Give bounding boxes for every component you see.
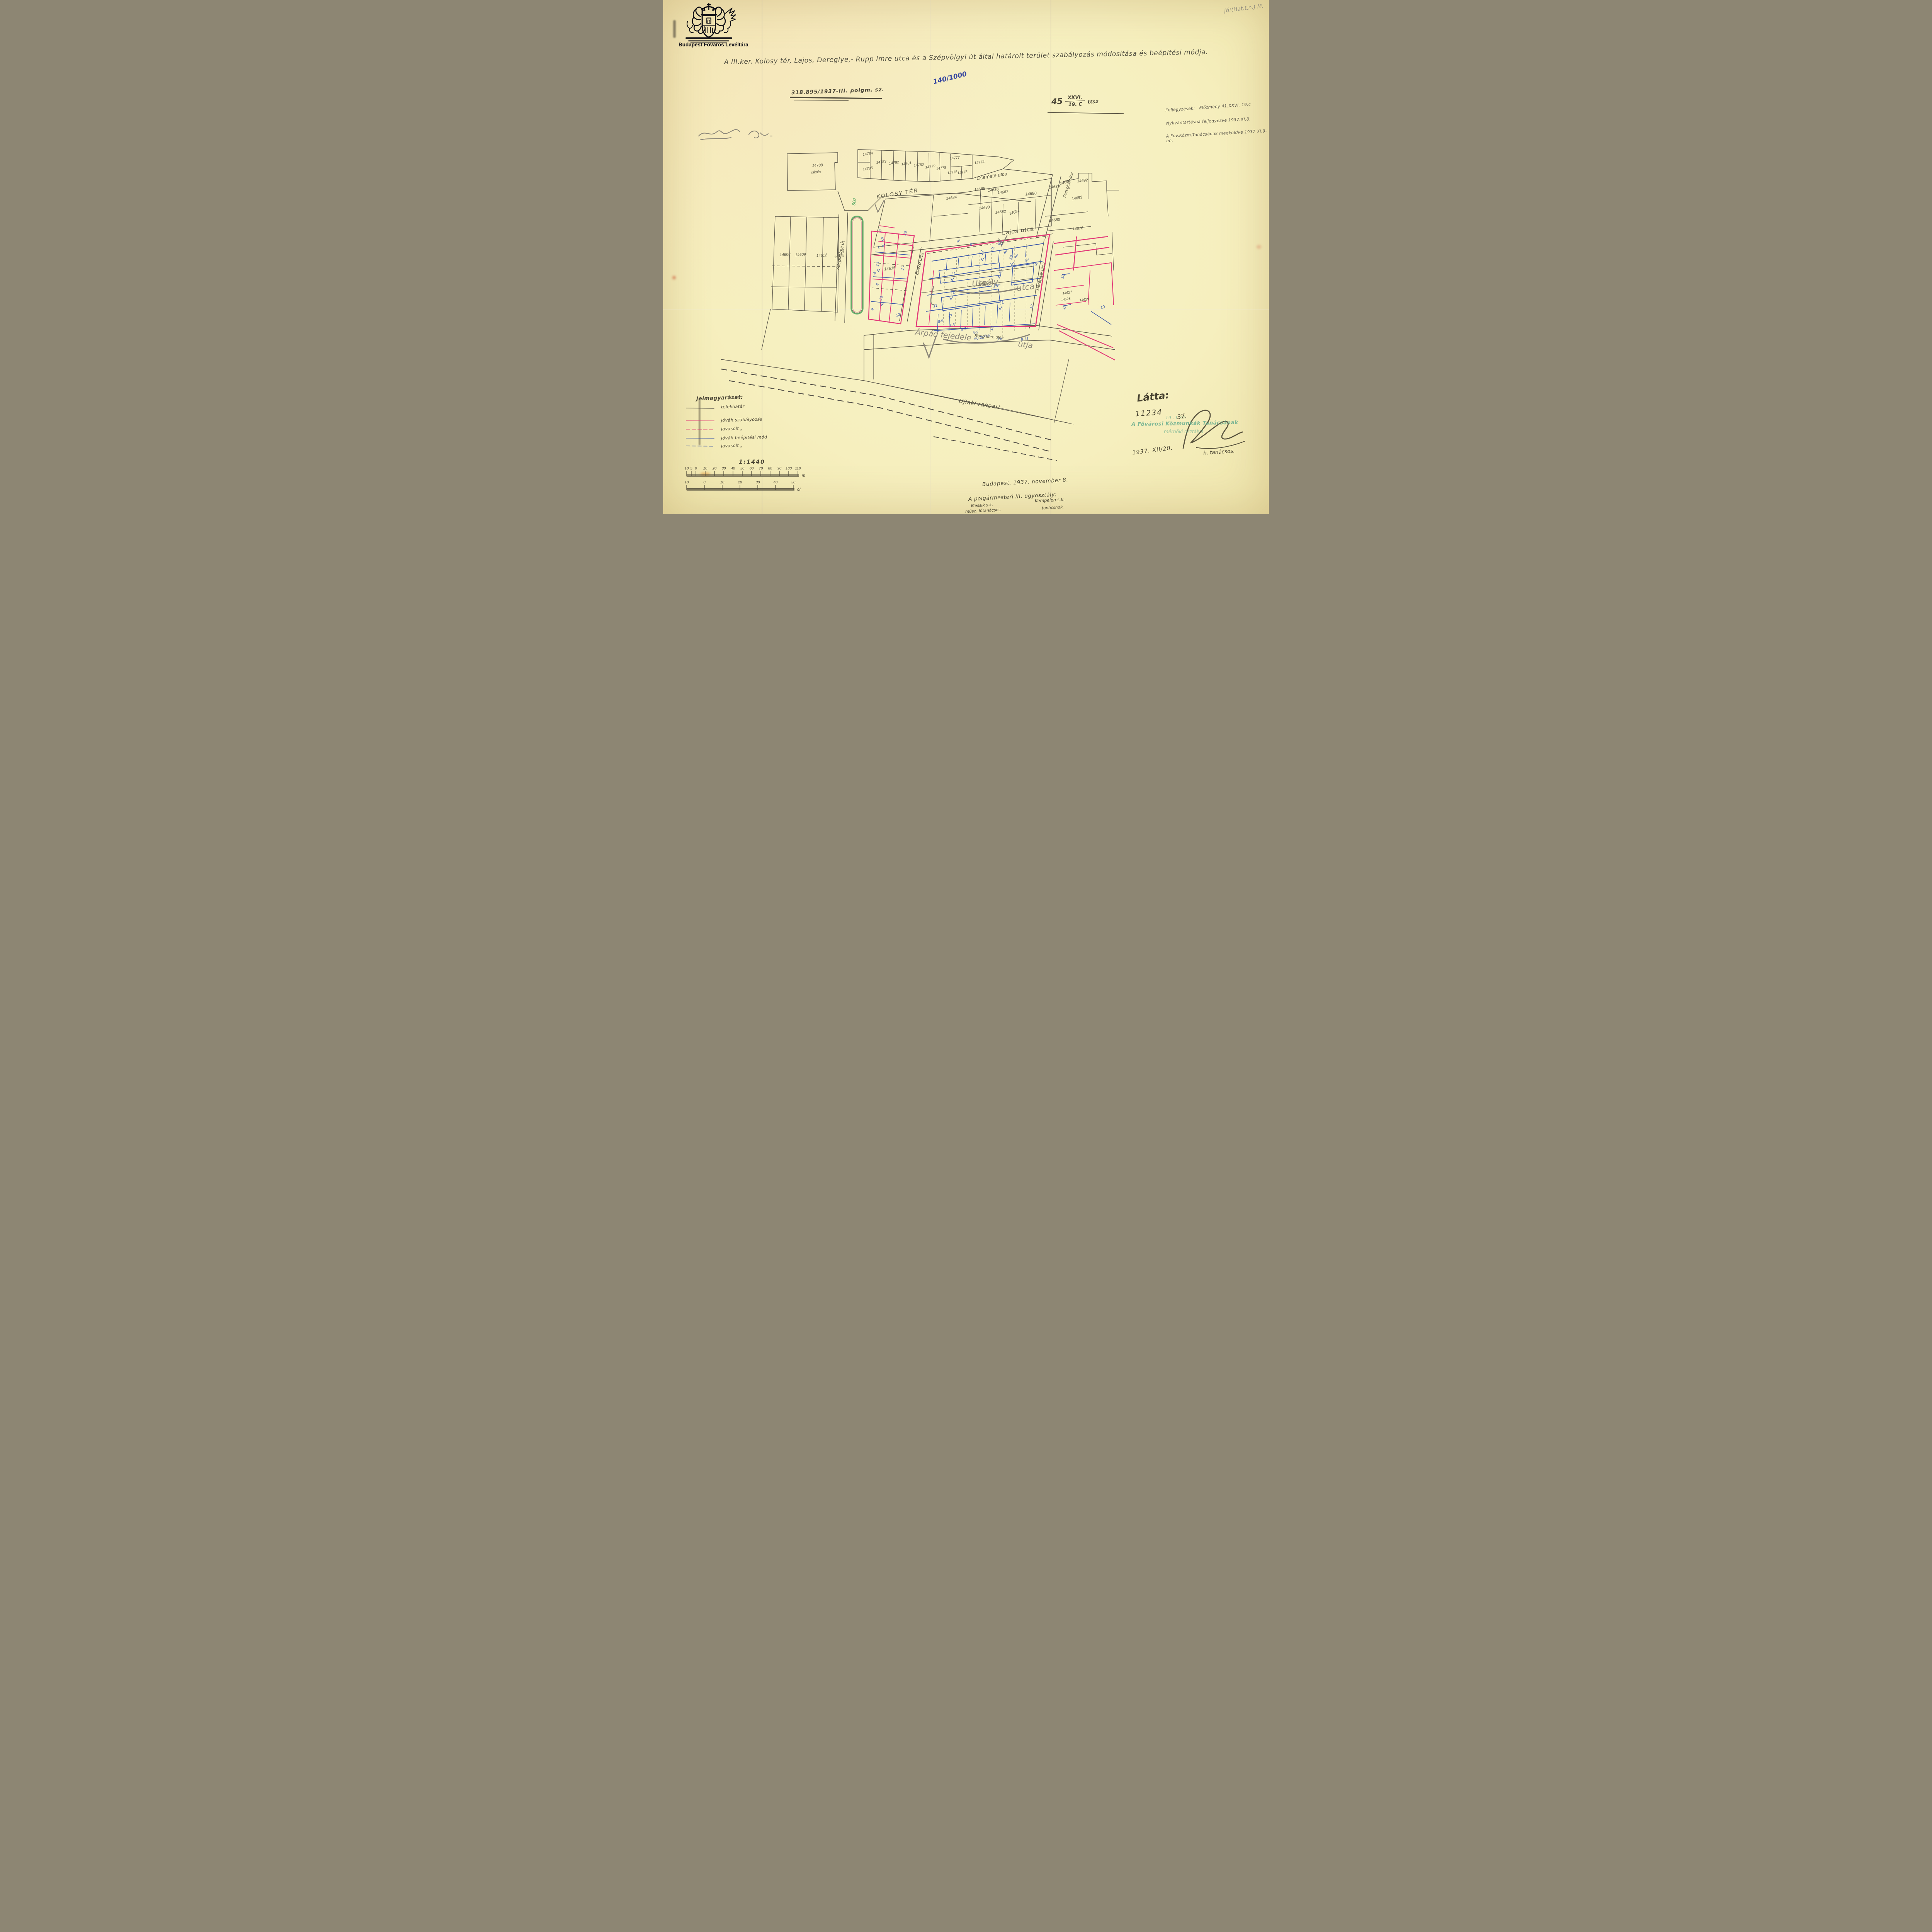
map-label: 14681 <box>1009 209 1020 216</box>
map-label: 14627 <box>1062 290 1073 295</box>
scale-tick-label: 110 <box>795 466 801 471</box>
map-label: 63° <box>997 240 1005 246</box>
scale-bars: 1050102030405060708090100110m10010203040… <box>685 466 805 492</box>
map-label: 14682 <box>995 209 1006 215</box>
scale-tick-label: 30 <box>756 480 760 485</box>
map-label: 14780 <box>913 162 924 168</box>
map-label: 14777 <box>949 155 960 161</box>
map-label: ·8 <box>872 271 877 275</box>
scale-tick-label: 0 <box>703 480 706 485</box>
scale-tick-label: 20 <box>738 480 742 485</box>
map-label: 14783 <box>876 159 887 165</box>
map-label: 14678 <box>1072 226 1083 231</box>
map-label: 14692 <box>1077 178 1088 184</box>
scale-tick-label: 40 <box>731 466 735 471</box>
map-label: utca <box>1016 282 1035 293</box>
plan-ref-fraction: XXVI. 19. C <box>1065 94 1085 107</box>
map-label: 9° <box>1034 262 1039 267</box>
legend-item-jovah-szabalyozas: jóváh.szabályozás <box>721 417 762 423</box>
map-label: 13 <box>900 265 906 271</box>
map-label: 14689 <box>1049 184 1060 190</box>
scale-tick-label: 50 <box>791 480 796 485</box>
map-label: 14608 <box>779 252 791 257</box>
stamp-engineering-dept: mérnöki osztálya <box>1164 429 1204 434</box>
scale-tick-label: 100 <box>786 466 792 471</box>
scale-tick-label: 20 <box>712 466 717 471</box>
map-label: 9° <box>1014 253 1019 259</box>
approval-year: 37. <box>1177 412 1187 420</box>
pencil-scrawl <box>699 129 772 140</box>
map-label: 11 <box>998 268 1004 274</box>
map-label: ·6 <box>870 308 874 311</box>
map-label: 9° <box>969 242 974 247</box>
map-label: 10 <box>1100 304 1105 310</box>
map-label: 14688 <box>1025 191 1037 197</box>
map-label: 11 <box>951 271 957 276</box>
map-label: 14684 <box>946 195 957 201</box>
map-label: 13 <box>948 313 953 319</box>
cadastral-lines <box>721 150 1119 424</box>
plan-ref-prefix: 45 <box>1051 97 1063 106</box>
map-label: 14628 <box>1061 297 1071 302</box>
map-label: Ujlaki rakpart <box>958 398 1001 411</box>
scale-tick-label: 5 <box>690 466 692 471</box>
map-label: 8·5 <box>937 319 944 324</box>
map-label: 14685 <box>974 187 985 192</box>
map-label: 14615 <box>884 265 896 272</box>
scale-tick-label: 10 <box>685 466 689 471</box>
map-label: 14774. <box>974 160 986 165</box>
legend-symbols <box>686 408 714 446</box>
rail-dashed-lines <box>721 369 1057 461</box>
map-label: 14609 <box>795 252 806 257</box>
map-label: 14779 <box>925 164 936 170</box>
map-label: 14612 <box>816 253 827 258</box>
scale-tick-label: 60 <box>750 466 754 471</box>
map-label: 11 <box>999 300 1005 305</box>
scale-tick-label: 50 <box>740 466 745 471</box>
legend-item-javasolt-2: javasolt „ <box>721 443 743 448</box>
scale-unit-label: m <box>802 473 805 478</box>
map-label: 14785 <box>862 166 873 172</box>
plan-reference: 45 XXVI. 19. C ttsz <box>1051 94 1098 108</box>
archive-logo <box>686 3 736 43</box>
scale-tick-label: 40 <box>774 480 778 485</box>
map-label: iskola <box>811 170 821 175</box>
scale-tick-label: 10 <box>720 480 724 485</box>
map-label: Dereglye utca <box>1062 172 1074 198</box>
map-label: 9° <box>991 246 995 252</box>
map-label: ·8 <box>875 283 879 287</box>
plan-ref-denominator: 19. C <box>1068 101 1082 107</box>
plan-ref-numerator: XXVI. <box>1065 94 1085 101</box>
map-label: 14629 <box>1079 297 1089 302</box>
map-label: útja <box>1017 339 1033 350</box>
legend-item-javasolt-1: javasolt „ <box>721 426 743 431</box>
map-label: 13 <box>1029 304 1035 310</box>
map-label: 11 <box>933 303 938 308</box>
archive-name: Budapest Főváros Levéltára <box>679 42 748 48</box>
scale-tick-label: 0 <box>695 466 697 471</box>
scale-tick-label: 30 <box>722 466 726 471</box>
building-lines-blue <box>871 243 1111 332</box>
map-label: 13 <box>879 296 884 301</box>
scale-unit-label: öl <box>797 487 801 492</box>
map-label: 14776 <box>947 170 958 175</box>
map-label: 9° <box>956 239 961 244</box>
map-label: 14782 <box>889 160 900 166</box>
scale-tick-label: 90 <box>777 466 782 471</box>
map-label: 14687 <box>997 190 1009 195</box>
scale-ratio: 1:1440 <box>739 459 765 465</box>
map-label: 500 <box>852 198 857 206</box>
plan-ref-suffix: ttsz <box>1087 99 1098 105</box>
scale-tick-label: 10 <box>703 466 707 471</box>
map-label: 13 <box>875 262 881 267</box>
legend-item-telekhatar: telekhatár <box>721 404 745 410</box>
map-label: 12 <box>1009 255 1014 260</box>
scale-tick-label: 70 <box>759 466 763 471</box>
map-label: 14778 <box>936 165 947 171</box>
scale-tick-label: 10 <box>685 480 689 485</box>
scale-tick-label: 80 <box>768 466 772 471</box>
map-label: 8·5 <box>961 327 967 332</box>
map-label: 8·5 <box>949 323 955 328</box>
map-label: 14784 <box>862 151 873 157</box>
map-label: 14781 <box>901 161 912 167</box>
map-label: 14789 <box>812 163 823 168</box>
map-label: 14775 <box>957 170 968 175</box>
map-label: 9° <box>1003 250 1008 255</box>
archival-map-sheet: 1050102030405060708090100110m10010203040… <box>663 0 1269 514</box>
park-strip <box>851 216 863 314</box>
map-label: 9° <box>1025 258 1029 263</box>
map-label: 14683 <box>979 205 990 211</box>
map-label: 14680 <box>1049 218 1060 223</box>
map-label: 14693 <box>1071 195 1083 201</box>
map-label: 13 <box>979 250 985 256</box>
